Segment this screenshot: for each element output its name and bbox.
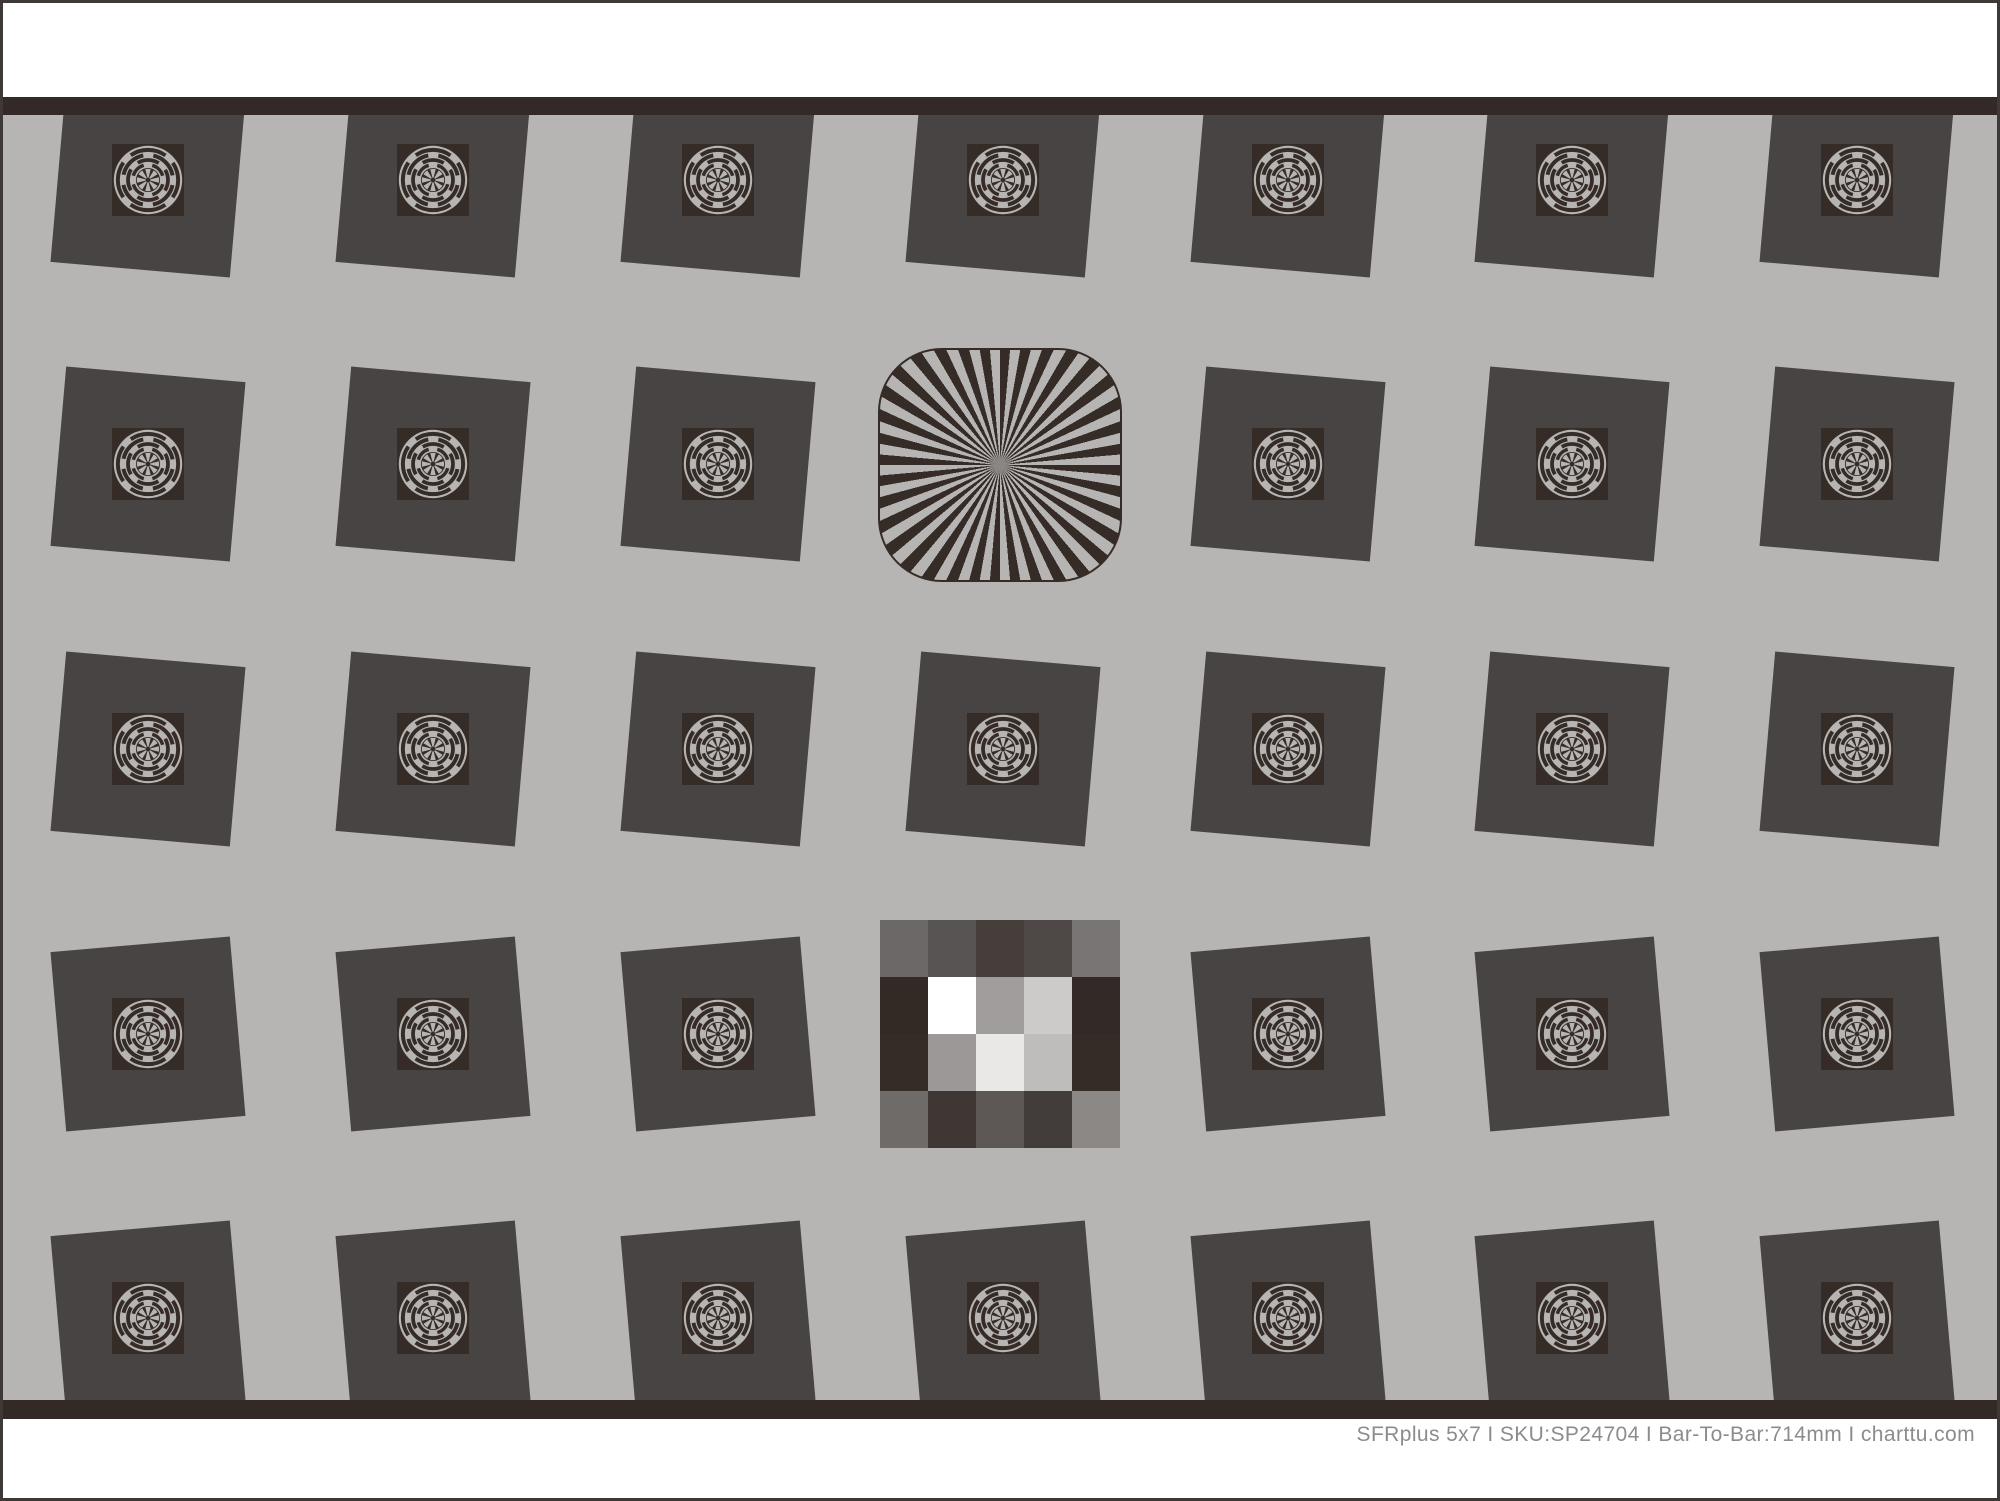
- gray-patch-cell: [1072, 1091, 1120, 1148]
- registration-mark-icon: [682, 998, 754, 1070]
- registration-mark-icon: [112, 144, 184, 216]
- registration-mark-icon: [397, 428, 469, 500]
- gray-patch-cell: [1072, 977, 1120, 1034]
- registration-mark-icon: [682, 428, 754, 500]
- registration-mark-icon: [112, 428, 184, 500]
- registration-mark-icon: [1821, 428, 1893, 500]
- gray-patch-cell: [928, 1091, 976, 1148]
- gray-patch-cell: [880, 1034, 928, 1091]
- siemens-star: [878, 348, 1122, 582]
- gray-patch-cell: [1072, 920, 1120, 977]
- registration-mark-icon: [397, 144, 469, 216]
- gray-patch-cell: [880, 920, 928, 977]
- gray-patch-cell: [1024, 977, 1072, 1034]
- registration-mark-icon: [397, 713, 469, 785]
- grayscale-checker: [880, 920, 1120, 1148]
- registration-mark-icon: [1252, 1282, 1324, 1354]
- registration-mark-icon: [112, 1282, 184, 1354]
- registration-mark-icon: [1536, 713, 1608, 785]
- registration-mark-icon: [1252, 713, 1324, 785]
- registration-mark-icon: [682, 144, 754, 216]
- registration-mark-icon: [1821, 1282, 1893, 1354]
- registration-mark-icon: [112, 713, 184, 785]
- gray-patch-cell: [976, 1091, 1024, 1148]
- registration-mark-icon: [1252, 144, 1324, 216]
- gray-patch-cell: [1072, 1034, 1120, 1091]
- chart-page: SFRplus 5x7 I SKU:SP24704 I Bar-To-Bar:7…: [0, 0, 2000, 1501]
- gray-patch-cell: [928, 1034, 976, 1091]
- gray-patch-cell: [880, 977, 928, 1034]
- gray-patch-cell: [976, 1034, 1024, 1091]
- chart-info-label: SFRplus 5x7 I SKU:SP24704 I Bar-To-Bar:7…: [1357, 1423, 1975, 1447]
- gray-patch-cell: [928, 920, 976, 977]
- registration-mark-icon: [112, 998, 184, 1070]
- registration-mark-icon: [682, 1282, 754, 1354]
- registration-mark-icon: [967, 713, 1039, 785]
- gray-patch-cell: [1024, 1091, 1072, 1148]
- registration-mark-icon: [1821, 998, 1893, 1070]
- chart-field: [3, 115, 1997, 1400]
- gray-patch-cell: [976, 920, 1024, 977]
- registration-mark-icon: [1821, 144, 1893, 216]
- gray-patch-cell: [928, 977, 976, 1034]
- registration-mark-icon: [397, 1282, 469, 1354]
- bottom-registration-bar: [3, 1400, 1997, 1419]
- registration-mark-icon: [397, 998, 469, 1070]
- registration-mark-icon: [1252, 428, 1324, 500]
- registration-mark-icon: [967, 1282, 1039, 1354]
- gray-patch-cell: [880, 1091, 928, 1148]
- registration-mark-icon: [967, 144, 1039, 216]
- gray-patch-cell: [1024, 920, 1072, 977]
- registration-mark-icon: [1536, 428, 1608, 500]
- registration-mark-icon: [1536, 1282, 1608, 1354]
- gray-patch-cell: [976, 977, 1024, 1034]
- top-registration-bar: [3, 97, 1997, 115]
- registration-mark-icon: [1536, 144, 1608, 216]
- registration-mark-icon: [1252, 998, 1324, 1070]
- registration-mark-icon: [682, 713, 754, 785]
- registration-mark-icon: [1536, 998, 1608, 1070]
- gray-patch-cell: [1024, 1034, 1072, 1091]
- registration-mark-icon: [1821, 713, 1893, 785]
